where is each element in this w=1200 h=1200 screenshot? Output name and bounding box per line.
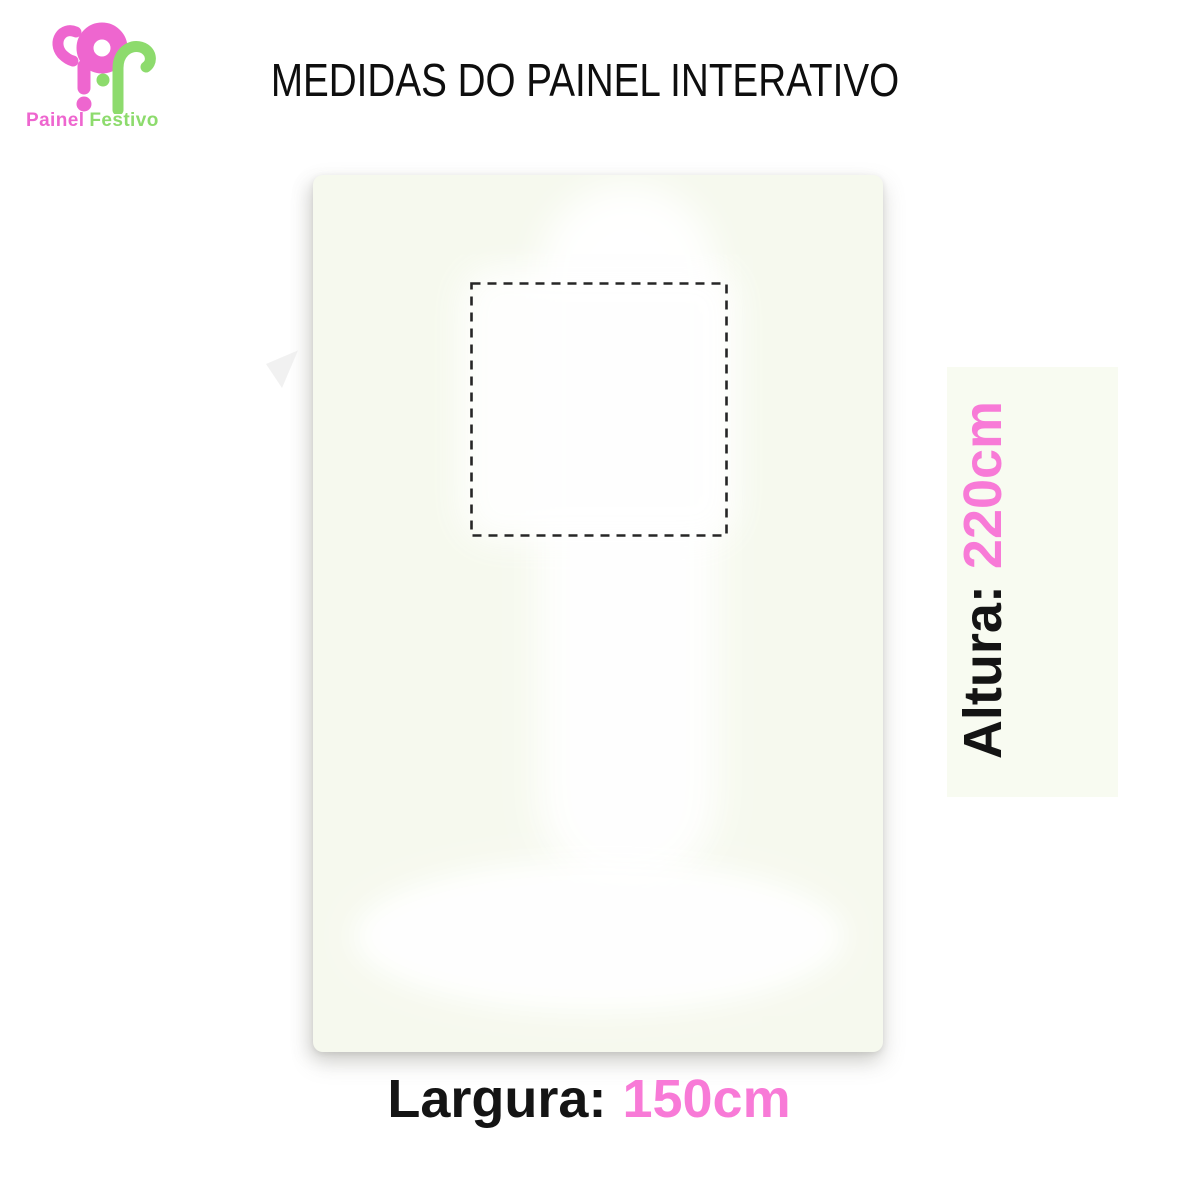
width-value: 150cm [622,1069,790,1129]
page: PainelFestivo MEDIDAS DO PAINEL INTERATI… [0,0,1200,1200]
panel-illustration [313,175,883,1052]
height-value: 220cm [953,401,1013,569]
width-label: Largura: [387,1069,606,1129]
brand-name-primary: Painel [26,110,84,131]
height-measurement: Altura:220cm [952,401,1014,759]
cutout-dashed-square [470,282,728,537]
panel-highlight-base [353,860,845,1012]
page-title: MEDIDAS DO PAINEL INTERATIVO [94,53,1077,107]
photo-artifact [266,348,298,388]
width-measurement: Largura:150cm [0,1068,1178,1130]
brand-name: PainelFestivo [26,110,216,132]
height-label: Altura: [953,585,1013,759]
brand-name-secondary: Festivo [89,110,158,131]
